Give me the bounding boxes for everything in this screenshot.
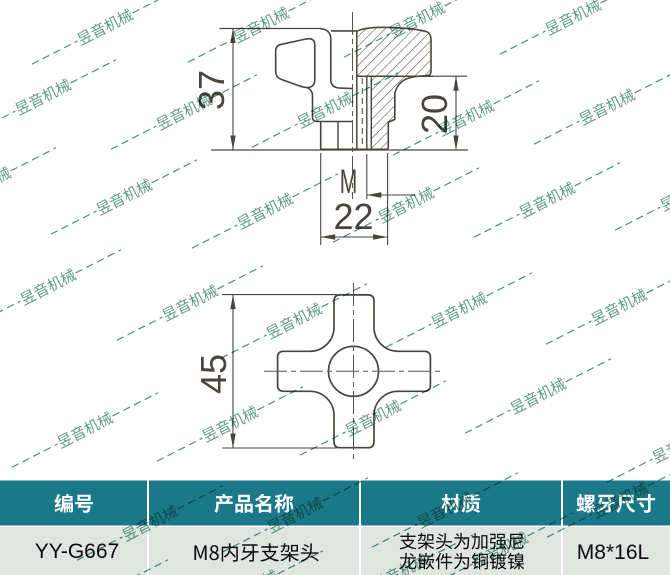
svg-text:22: 22 [333,196,373,237]
svg-text:M: M [340,162,358,200]
svg-text:M8*16L: M8*16L [577,541,649,564]
svg-text:45: 45 [193,354,234,394]
svg-text:37: 37 [191,70,232,110]
